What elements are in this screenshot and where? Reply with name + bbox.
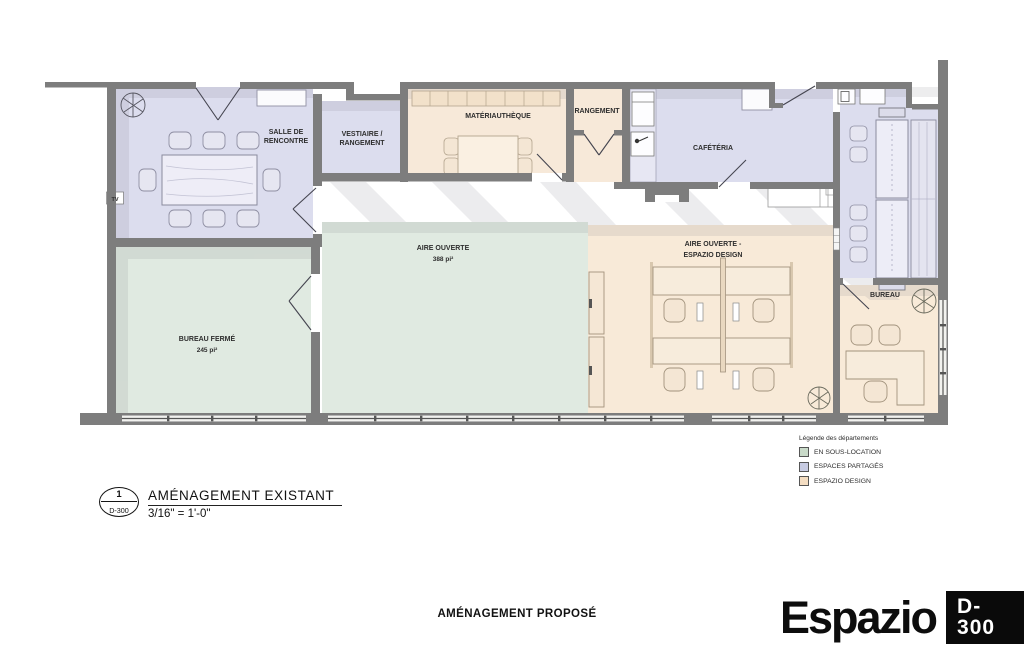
counter-appliance <box>860 88 885 104</box>
chair-icon <box>664 368 685 391</box>
legend-swatch-purple <box>799 462 809 472</box>
legend-item-sous-location: EN SOUS-LOCATION <box>799 447 883 457</box>
label-aire-ouverte-line1: AIRE OUVERTE <box>417 245 470 252</box>
chair-icon <box>753 299 774 322</box>
label-bureau: BUREAU <box>870 292 900 299</box>
monitor-icon <box>733 303 739 321</box>
detail-bubble: 1 D-300 <box>99 487 139 517</box>
room-bureau-ferme <box>116 247 311 413</box>
view-scale: 3/16" = 1'-0" <box>148 508 342 520</box>
sheet-caption: AMÉNAGEMENT PROPOSÉ <box>437 608 596 620</box>
chair-icon <box>517 138 532 155</box>
wall-notch <box>655 195 679 202</box>
bubble-divider <box>101 501 137 502</box>
chair-icon <box>850 226 867 241</box>
label-tv: TV <box>111 197 118 203</box>
label-espazio-line1: AIRE OUVERTE - <box>685 241 742 248</box>
legend-item-partages: ESPACES PARTAGÉS <box>799 462 883 472</box>
drawing-sheet: SALLE DE RENCONTRE VESTIAIRE / RANGEMENT… <box>0 0 1024 662</box>
chair-icon <box>664 299 685 322</box>
bench-end <box>879 108 905 117</box>
fridge-icon <box>632 92 654 126</box>
label-bureau-ferme-line2: 245 pi² <box>197 347 218 354</box>
label-salle-line2: RENCONTRE <box>264 138 309 145</box>
espazio-logo: Espazio <box>780 595 936 640</box>
task-chair-icon <box>864 381 887 402</box>
work-table <box>458 136 518 176</box>
monitor-icon <box>697 303 703 321</box>
chair-icon <box>850 147 867 162</box>
chair-icon <box>203 210 225 227</box>
cased-opening <box>834 228 840 250</box>
legend-title: Légende des départements <box>799 435 883 442</box>
sink-icon <box>631 132 654 156</box>
chair-icon <box>203 132 225 149</box>
sheet-number-badge: D-300 <box>946 591 1024 644</box>
chair-icon <box>237 132 259 149</box>
monitor-icon <box>697 371 703 389</box>
faucet-icon <box>635 139 639 143</box>
label-espazio-line2: ESPAZIO DESIGN <box>684 252 743 259</box>
chair-icon <box>444 158 459 175</box>
legend-label: EN SOUS-LOCATION <box>814 449 881 456</box>
exterior-notch <box>912 60 938 104</box>
desk-end-panel <box>790 262 793 368</box>
legend-label: ESPACES PARTAGÉS <box>814 463 883 470</box>
privacy-divider <box>721 258 726 372</box>
chair-icon <box>139 169 156 191</box>
chair-icon <box>753 368 774 391</box>
window-strip-right <box>939 300 947 395</box>
view-title: AMÉNAGEMENT EXISTANT <box>148 488 342 506</box>
label-vestiaire-line1: VESTIAIRE / <box>342 131 383 138</box>
window-strip <box>712 415 816 422</box>
chair-icon <box>237 210 259 227</box>
window-strip <box>122 415 306 422</box>
detail-number: 1 <box>100 489 138 500</box>
legend-swatch-green <box>799 447 809 457</box>
legend-label: ESPAZIO DESIGN <box>814 478 871 485</box>
chair-icon <box>444 138 459 155</box>
chair-icon <box>263 169 280 191</box>
floor-plan: SALLE DE RENCONTRE VESTIAIRE / RANGEMENT… <box>0 0 1024 662</box>
cabinet-handle <box>589 366 592 375</box>
legend-swatch-tan <box>799 476 809 486</box>
wall-board <box>742 89 772 110</box>
chair-icon <box>850 126 867 141</box>
chair-icon <box>517 158 532 175</box>
chair-icon <box>169 132 191 149</box>
logo-block: Espazio D-300 <box>780 591 1024 644</box>
window-strip <box>848 415 924 422</box>
label-aire-ouverte-line2: 388 pi² <box>433 256 454 263</box>
label-materiautheque: MATÉRIAUTHÈQUE <box>465 111 531 120</box>
cabinet-handle <box>589 299 592 308</box>
label-salle-line1: SALLE DE <box>269 129 304 136</box>
label-rangement: RANGEMENT <box>574 108 620 115</box>
label-vestiaire-line2: RANGEMENT <box>339 140 385 147</box>
chair-icon <box>850 205 867 220</box>
chair-icon <box>879 325 900 345</box>
desk-end-panel <box>650 262 653 368</box>
monitor-icon <box>733 371 739 389</box>
legend-item-espazio: ESPAZIO DESIGN <box>799 476 883 486</box>
label-cafeteria: CAFÉTÉRIA <box>693 143 733 152</box>
label-bureau-ferme-line1: BUREAU FERMÉ <box>179 334 236 343</box>
chair-icon <box>169 210 191 227</box>
chair-icon <box>850 247 867 262</box>
detail-sheet-ref: D-300 <box>100 506 138 515</box>
chair-icon <box>851 325 872 345</box>
credenza <box>257 90 306 106</box>
view-title-block: 1 D-300 AMÉNAGEMENT EXISTANT 3/16" = 1'-… <box>99 487 342 520</box>
legend: Légende des départements EN SOUS-LOCATIO… <box>799 435 883 491</box>
room-cafeteria <box>630 89 833 182</box>
window-strip <box>328 415 684 422</box>
